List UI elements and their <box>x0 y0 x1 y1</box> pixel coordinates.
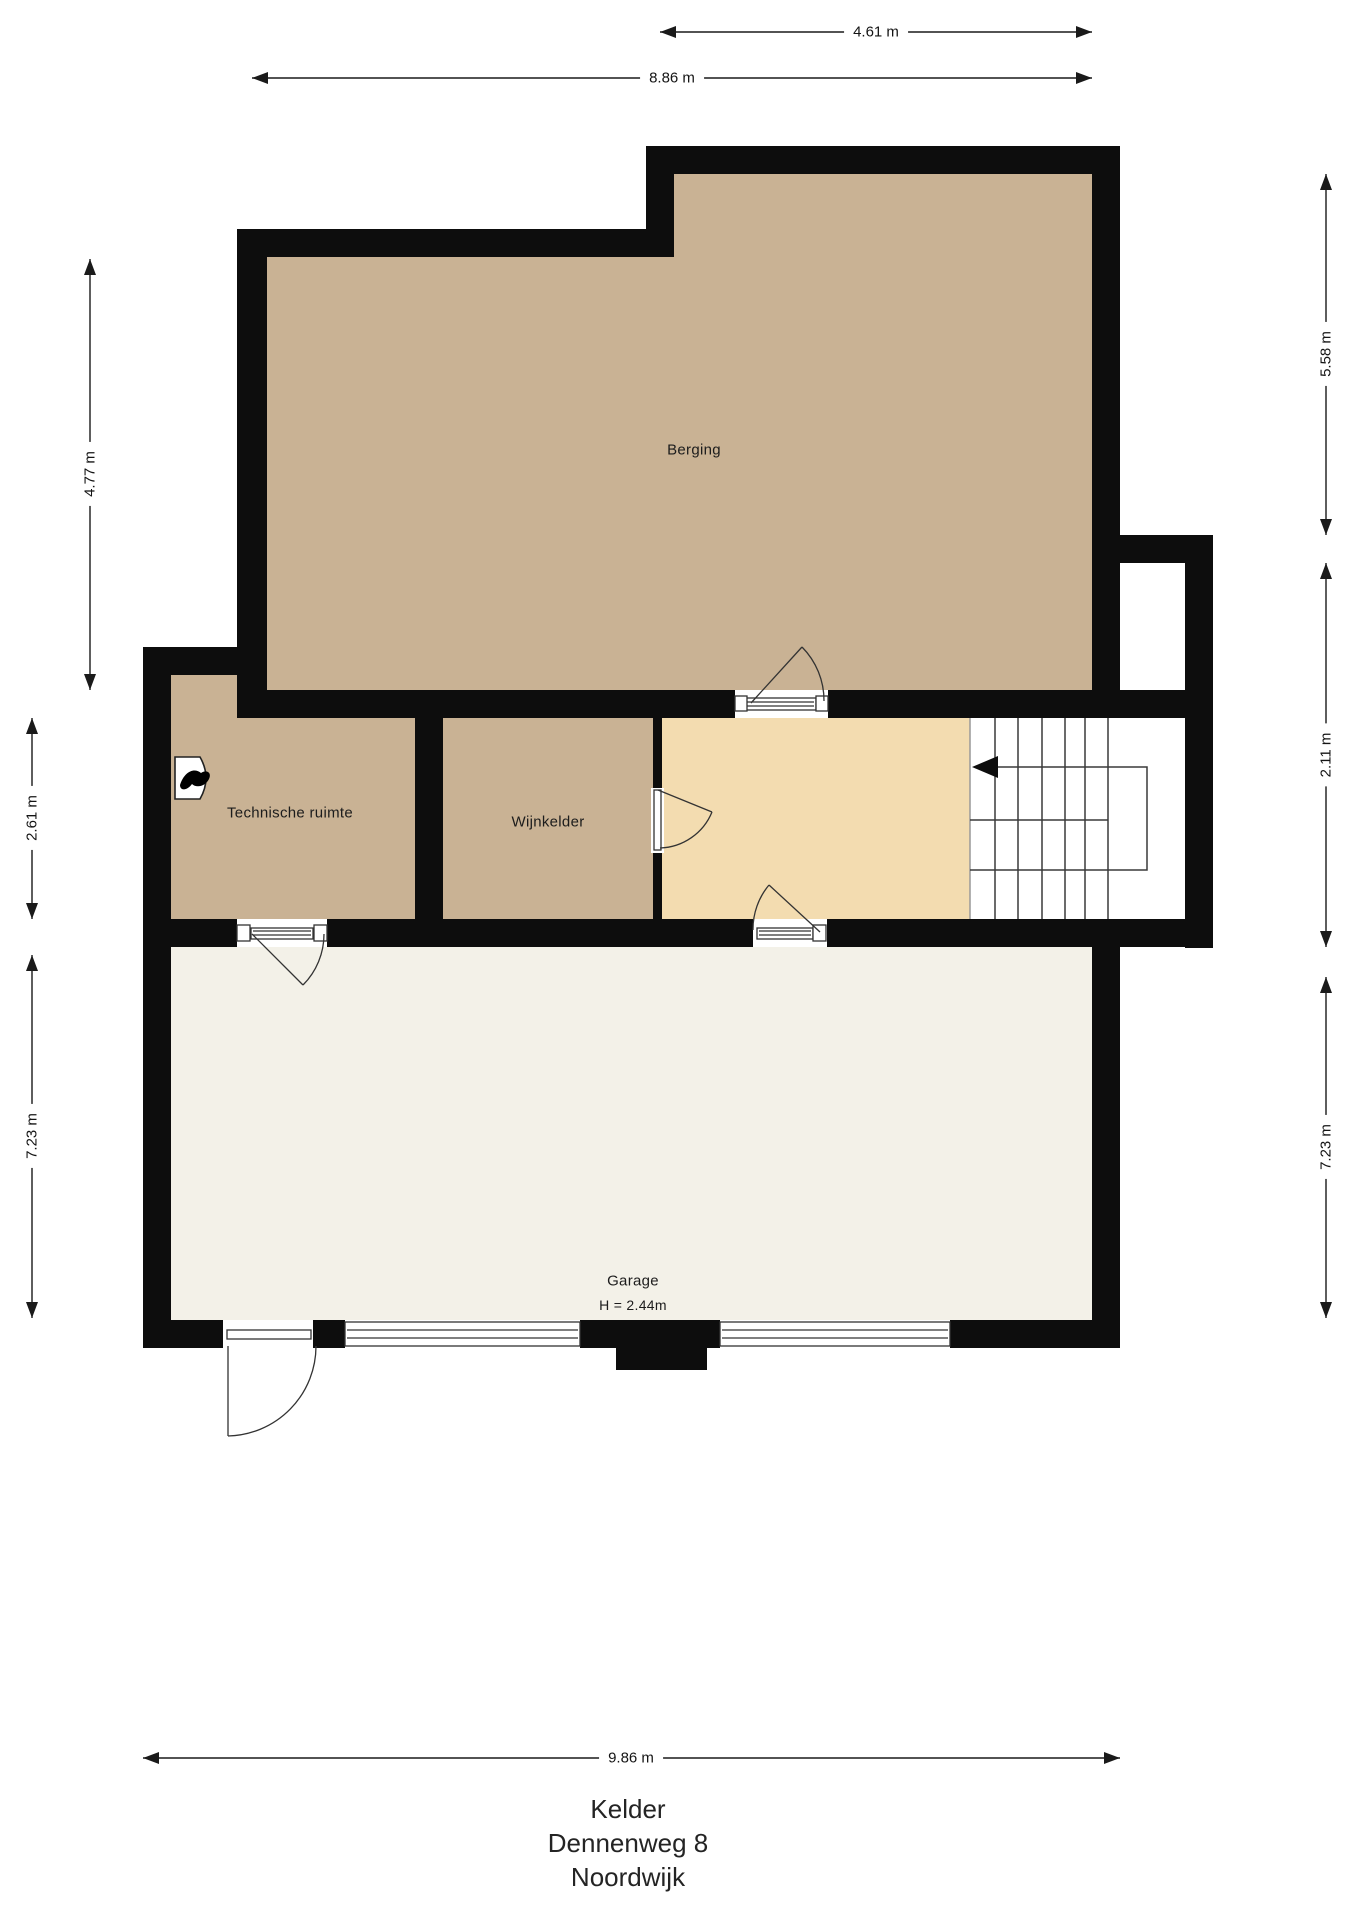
dim-label-left-garage: 7.23 m <box>23 1104 42 1168</box>
dim-label-bottom: 9.86 m <box>599 1749 663 1768</box>
room-label-berging: Berging <box>667 442 721 459</box>
dimension-lines <box>32 32 1326 1758</box>
plan-title-block: Kelder Dennenweg 8 Noordwijk <box>548 1792 708 1894</box>
dim-label-left-berging: 4.77 m <box>81 442 100 506</box>
dim-label-left-middle: 2.61 m <box>23 786 42 850</box>
dim-label-top-partial: 4.61 m <box>844 23 908 42</box>
room-label-garage: Garage <box>607 1273 659 1290</box>
plan-title-city: Noordwijk <box>548 1860 708 1894</box>
floorplan-page: { "plan": { "rooms": [ { "label": "Bergi… <box>0 0 1358 1920</box>
dim-label-right-garage: 7.23 m <box>1317 1115 1336 1179</box>
plan-title-floor: Kelder <box>548 1792 708 1826</box>
door-tr-garage <box>237 925 327 985</box>
stair-walk-line <box>970 767 1147 870</box>
boiler-unit <box>175 757 210 799</box>
door-hall-garage <box>753 885 826 941</box>
door-berging-hall <box>735 647 828 711</box>
dim-label-top-full: 8.86 m <box>640 69 704 88</box>
plan-detail-overlay <box>0 0 1358 1920</box>
stair-direction-arrow-icon <box>972 756 998 778</box>
dim-label-right-stairs: 2.11 m <box>1317 724 1336 787</box>
door-garage-exterior <box>227 1330 316 1436</box>
dim-label-right-berging: 5.58 m <box>1317 322 1336 386</box>
room-label-technische-ruimte: Technische ruimte <box>227 805 353 822</box>
staircase <box>970 718 1147 919</box>
plan-title-street: Dennenweg 8 <box>548 1826 708 1860</box>
door-wijnkelder-hall <box>654 790 712 850</box>
room-label-wijnkelder: Wijnkelder <box>511 814 584 831</box>
window-garage-right <box>720 1322 950 1346</box>
window-garage-left <box>345 1322 580 1346</box>
room-label-garage-height: H = 2.44m <box>599 1297 667 1313</box>
